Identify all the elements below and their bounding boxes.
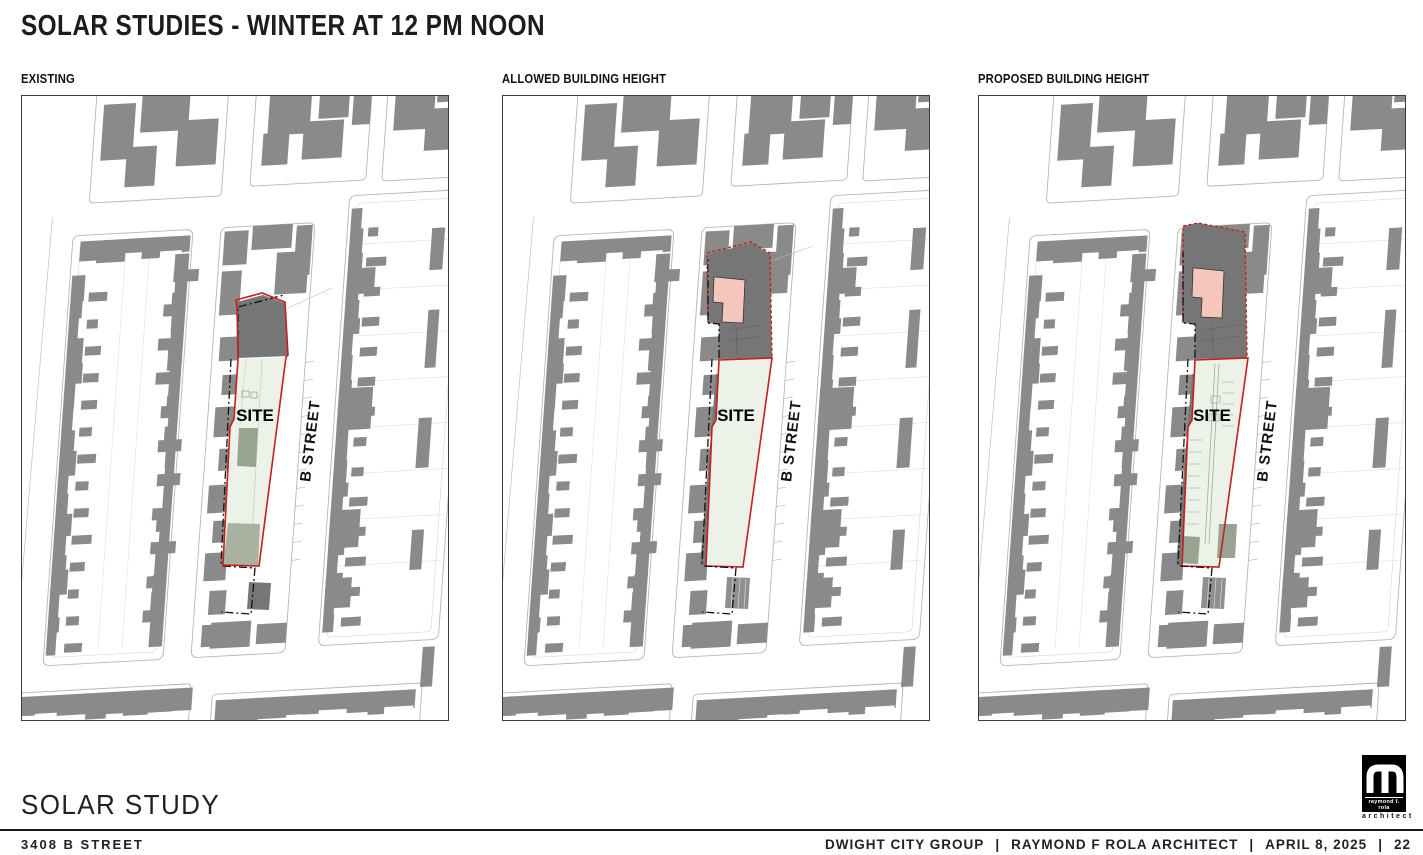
site-label: SITE <box>236 406 274 425</box>
page-title: SOLAR STUDIES - WINTER AT 12 PM NOON <box>21 10 545 43</box>
credit-developer: DWIGHT CITY GROUP <box>825 837 984 852</box>
credit-separator: | <box>1249 837 1254 852</box>
existing-site-plan: SITEB STREET <box>22 96 448 720</box>
credit-separator: | <box>1378 837 1383 852</box>
panel-label-existing: EXISTING <box>21 72 75 86</box>
logo-architect-text: architect <box>1362 813 1406 820</box>
solar-map-allowed: SITEB STREET <box>502 95 930 721</box>
panel-label-allowed: ALLOWED BUILDING HEIGHT <box>502 72 666 86</box>
page-number: 22 <box>1394 837 1411 852</box>
solar-map-proposed: SITEB STREET <box>978 95 1406 721</box>
logo-name-text: raymond f. rola <box>1362 799 1406 811</box>
site-label: SITE <box>717 406 755 425</box>
slide: SOLAR STUDIES - WINTER AT 12 PM NOON EXI… <box>0 0 1423 855</box>
proposed-site-plan: SITEB STREET <box>979 96 1405 720</box>
architect-logo: raymond f. rola architect <box>1362 755 1406 829</box>
footer-credits: DWIGHT CITY GROUP | RAYMOND F ROLA ARCHI… <box>825 837 1411 852</box>
solar-map-existing: SITEB STREET <box>21 95 449 721</box>
footer-divider-line <box>0 829 1423 831</box>
credit-architect: RAYMOND F ROLA ARCHITECT <box>1011 837 1238 852</box>
panel-label-proposed: PROPOSED BUILDING HEIGHT <box>978 72 1149 86</box>
architect-logo-mark: raymond f. rola <box>1362 755 1406 812</box>
site-label: SITE <box>1193 406 1231 425</box>
project-address: 3408 B STREET <box>21 837 144 852</box>
credit-separator: | <box>995 837 1000 852</box>
allowed-site-plan: SITEB STREET <box>503 96 929 720</box>
sheet-title: SOLAR STUDY <box>21 789 220 821</box>
sheet-date: APRIL 8, 2025 <box>1265 837 1367 852</box>
